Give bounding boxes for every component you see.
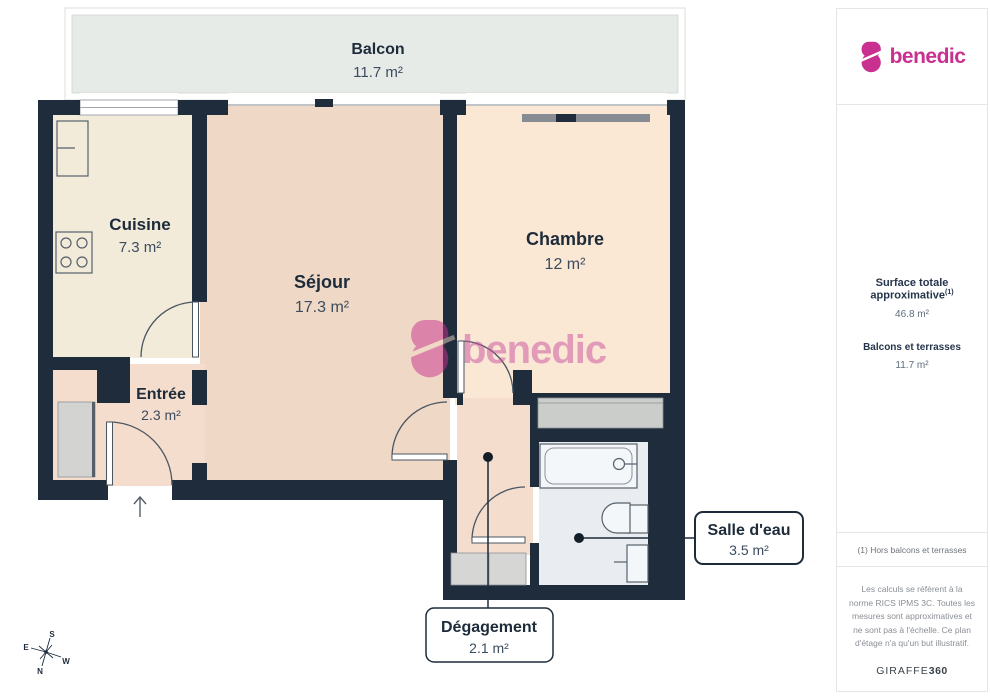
entree-name: Entrée	[136, 386, 186, 403]
salle-deau-name: Salle d'eau	[708, 522, 791, 539]
sejour-name: Séjour	[294, 272, 350, 292]
kitchen-window	[80, 93, 178, 115]
brand-name: benedic	[890, 45, 966, 69]
compass-s: S	[49, 630, 55, 639]
sejour-area: 17.3 m²	[295, 299, 350, 316]
benedic-logo-icon	[859, 41, 885, 73]
watermark-text: benedic	[462, 328, 607, 372]
surface-title: Surface totale approximative(1)	[837, 277, 987, 302]
cuisine-area: 7.3 m²	[119, 239, 162, 256]
compass-icon: S N E W	[23, 630, 70, 676]
degagement-area: 2.1 m²	[469, 640, 509, 656]
degagement-name: Dégagement	[441, 619, 538, 636]
bathtub	[540, 444, 637, 488]
salle-deau-area: 3.5 m²	[729, 542, 769, 558]
compass-w: W	[62, 657, 70, 666]
room-degagement-floor	[457, 398, 533, 555]
floor-plan: benedic Salle d'eau 3.5 m² Dégagement 2.…	[0, 0, 835, 700]
footnote-card: (1) Hors balcons et terrasses	[836, 532, 988, 567]
sidebar: benedic Surface totale approximative(1) …	[836, 8, 988, 692]
footnote-text: (1) Hors balcons et terrasses	[857, 545, 966, 555]
entrance-arrow-icon	[134, 497, 146, 517]
entree-area: 2.3 m²	[141, 407, 181, 423]
sejour-sliding-door	[228, 93, 440, 107]
room-cuisine-floor	[53, 115, 198, 358]
surface-footnote-marker: (1)	[945, 289, 954, 296]
balconies-value: 11.7 m²	[837, 360, 987, 371]
brand-card: benedic	[836, 8, 988, 105]
label-salle-deau: Salle d'eau 3.5 m²	[695, 512, 803, 564]
balcon-name: Balcon	[351, 41, 404, 58]
surface-card: Surface totale approximative(1) 46.8 m² …	[836, 104, 988, 533]
balconies-title: Balcons et terrasses	[837, 342, 987, 353]
provider-logo: GIRAFFE360	[849, 665, 975, 677]
compass-e: E	[23, 643, 29, 652]
watermark: benedic	[405, 320, 607, 377]
surface-value: 46.8 m²	[837, 309, 987, 320]
toilet	[602, 503, 648, 533]
chambre-name: Chambre	[526, 229, 604, 249]
legal-card: Les calculs se réfèrent à la norme RICS …	[836, 566, 988, 692]
compass-n: N	[37, 667, 43, 676]
entree-closet	[58, 402, 95, 477]
legal-text: Les calculs se réfèrent à la norme RICS …	[849, 583, 975, 651]
brand-logo: benedic	[859, 41, 966, 73]
balcon-area: 11.7 m²	[353, 64, 403, 81]
chambre-area: 12 m²	[545, 256, 587, 273]
room-sejour-floor	[200, 106, 450, 486]
label-degagement: Dégagement 2.1 m²	[426, 608, 553, 662]
chambre-closet	[538, 398, 663, 428]
cuisine-name: Cuisine	[109, 215, 170, 234]
